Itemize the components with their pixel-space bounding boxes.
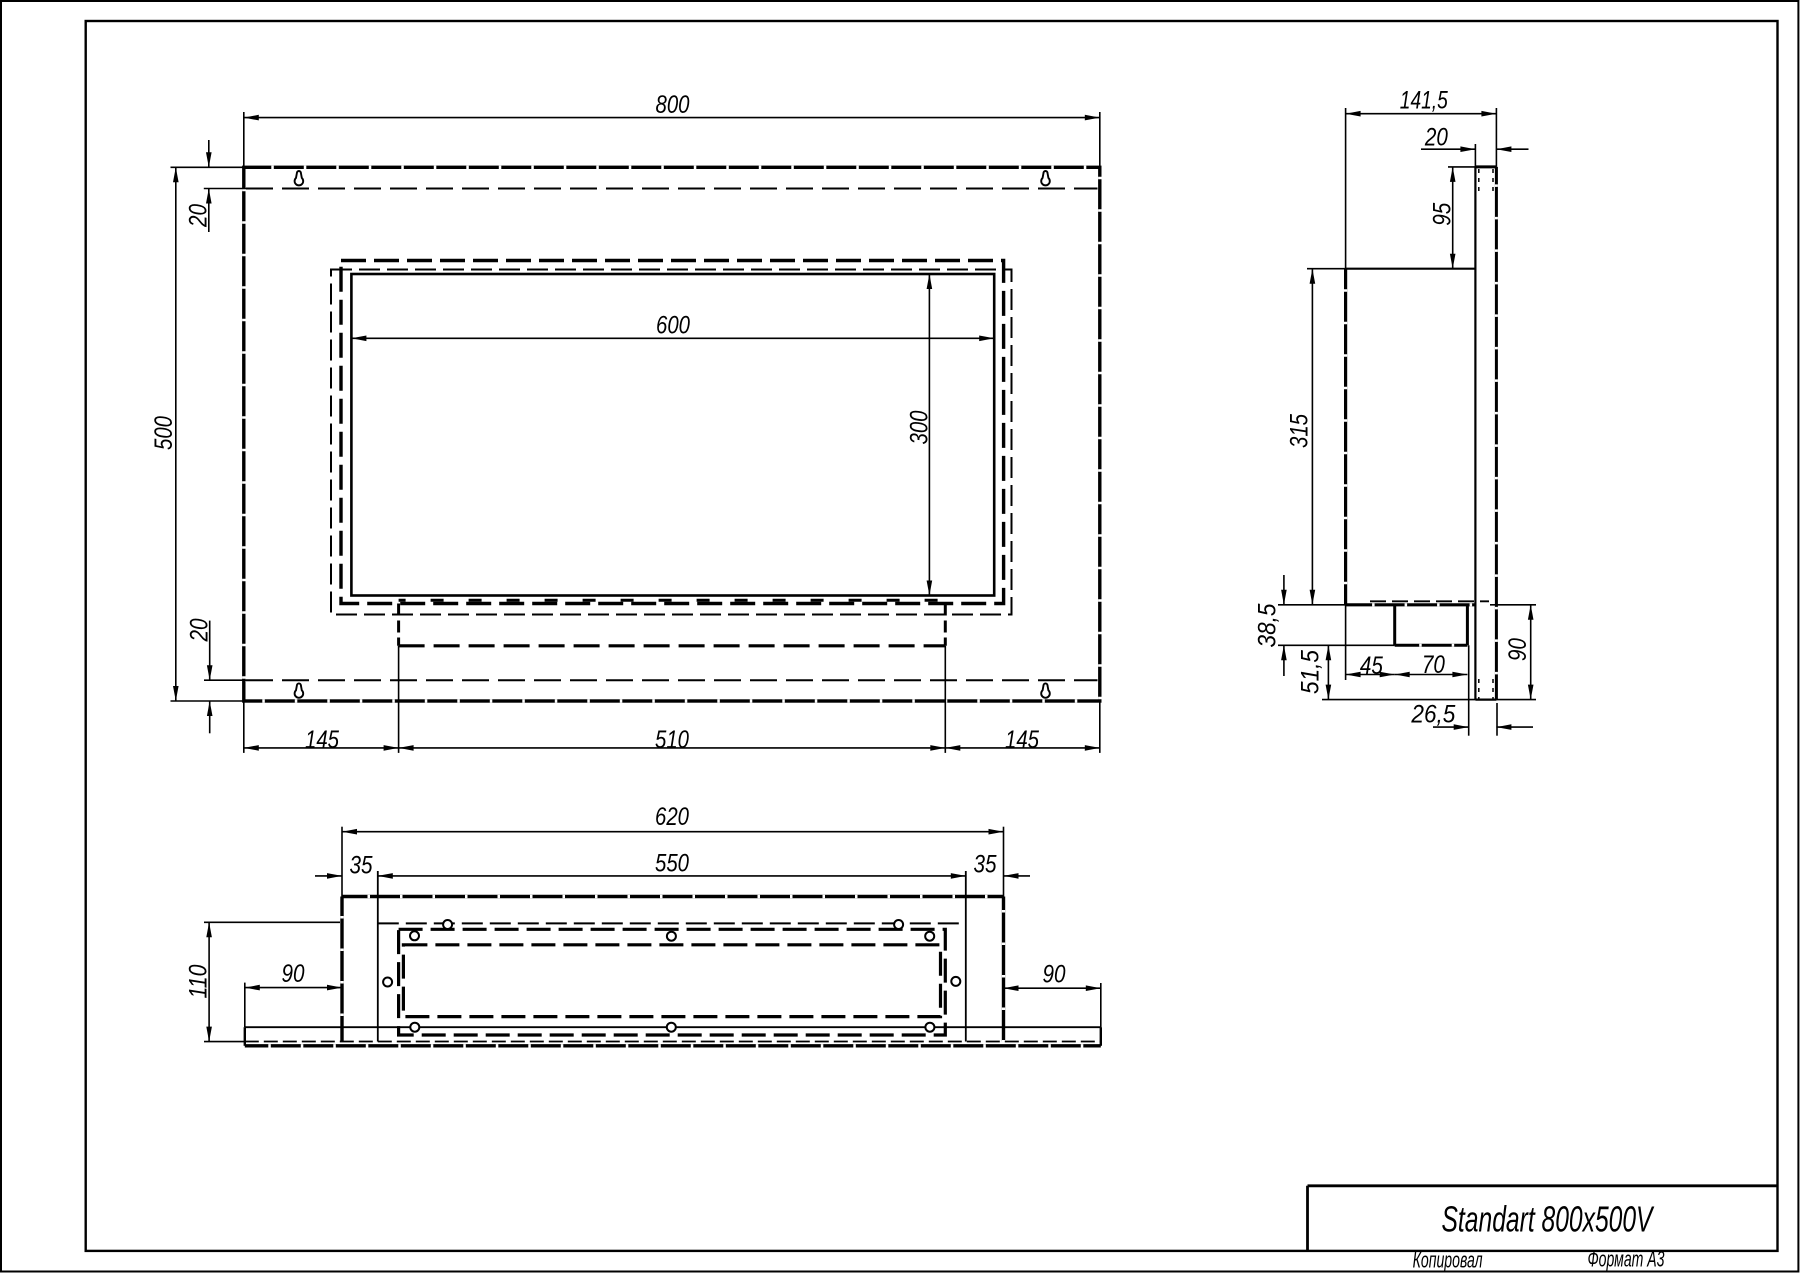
svg-text:300: 300 — [906, 410, 934, 444]
svg-text:51,5: 51,5 — [1297, 650, 1325, 694]
svg-text:20: 20 — [186, 618, 214, 642]
svg-text:35: 35 — [974, 851, 997, 879]
svg-text:90: 90 — [1043, 961, 1066, 989]
svg-text:145: 145 — [305, 726, 339, 754]
svg-text:38,5: 38,5 — [1254, 603, 1282, 647]
svg-text:70: 70 — [1422, 651, 1445, 679]
svg-text:510: 510 — [655, 726, 689, 754]
svg-text:141,5: 141,5 — [1400, 86, 1448, 114]
svg-text:20: 20 — [184, 204, 212, 228]
svg-text:315: 315 — [1286, 414, 1314, 448]
svg-text:90: 90 — [1504, 638, 1532, 661]
svg-text:Копировал: Копировал — [1413, 1247, 1483, 1272]
svg-text:45: 45 — [1360, 652, 1383, 680]
svg-text:90: 90 — [282, 960, 305, 988]
svg-text:Формат А3: Формат А3 — [1588, 1246, 1665, 1271]
svg-text:800: 800 — [656, 91, 690, 119]
svg-text:35: 35 — [350, 852, 373, 880]
svg-text:26,5: 26,5 — [1410, 700, 1455, 728]
svg-text:Standart 800x500V: Standart 800x500V — [1442, 1199, 1655, 1240]
svg-text:500: 500 — [150, 416, 178, 450]
svg-text:550: 550 — [655, 850, 689, 878]
svg-text:95: 95 — [1429, 203, 1457, 226]
svg-text:600: 600 — [656, 312, 690, 340]
svg-text:20: 20 — [1424, 124, 1448, 152]
svg-text:145: 145 — [1005, 726, 1039, 754]
svg-text:110: 110 — [184, 964, 212, 998]
svg-text:620: 620 — [655, 803, 689, 831]
